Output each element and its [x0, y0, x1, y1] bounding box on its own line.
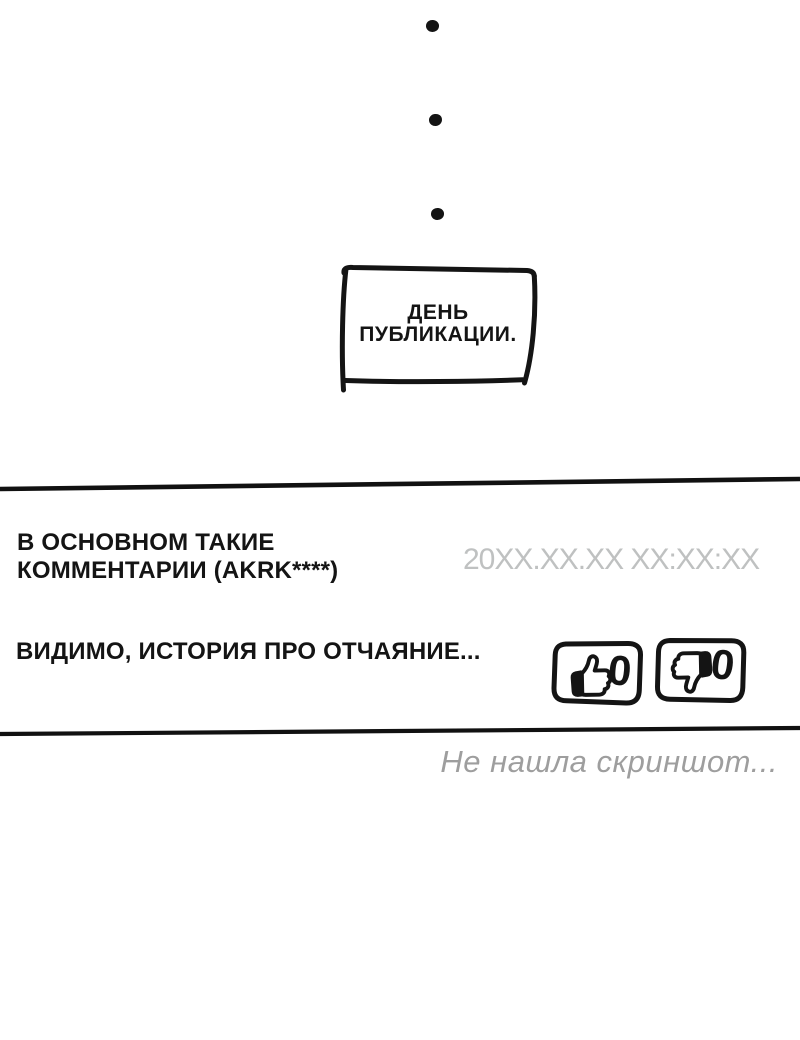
comment-body: ВИДИМО, ИСТОРИЯ ПРО ОТЧАЯНИЕ... [16, 638, 481, 666]
caption-line-2: ПУБЛИКАЦИИ. [342, 324, 534, 346]
ellipsis-dot [425, 19, 440, 33]
comment-header-line-2: КОММЕНТАРИИ (AKRK****) [17, 557, 338, 585]
comment-timestamp: 20XX.XX.XX XX:XX:XX [463, 543, 759, 577]
ellipsis-dot [431, 208, 445, 221]
ellipsis-dot [428, 113, 442, 126]
comment-header: В ОСНОВНОМ ТАКИЕ КОММЕНТАРИИ (AKRK****) [17, 529, 338, 585]
caption-text: ДЕНЬ ПУБЛИКАЦИИ. [342, 302, 534, 346]
panel-separator-top [0, 474, 800, 496]
comic-page: ДЕНЬ ПУБЛИКАЦИИ. В ОСНОВНОМ ТАКИЕ КОММЕН… [0, 0, 800, 1040]
dislike-button[interactable]: 0 [652, 634, 750, 708]
like-count: 0 [606, 649, 633, 693]
like-button[interactable]: 0 [549, 636, 647, 710]
thumbs-down-icon [670, 649, 714, 699]
panel-separator-bottom [0, 720, 800, 740]
caption-box: ДЕНЬ ПУБЛИКАЦИИ. [328, 256, 544, 400]
comment-header-line-1: В ОСНОВНОМ ТАКИЕ [17, 529, 338, 557]
author-note: Не нашла скриншот... [440, 744, 778, 780]
caption-line-1: ДЕНЬ [342, 302, 534, 324]
